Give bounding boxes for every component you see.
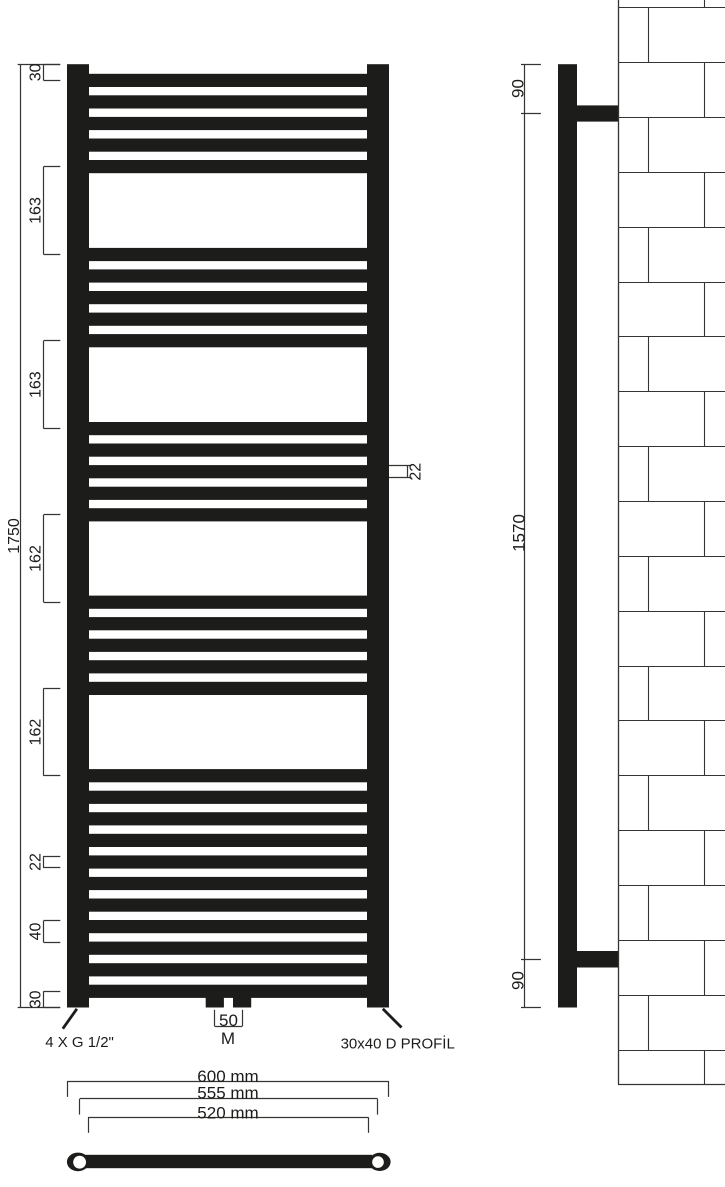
svg-text:163: 163 bbox=[28, 197, 45, 224]
svg-text:30: 30 bbox=[28, 63, 45, 81]
svg-text:162: 162 bbox=[28, 719, 45, 746]
svg-text:555 mm: 555 mm bbox=[197, 1084, 258, 1103]
svg-text:4 X G 1/2": 4 X G 1/2" bbox=[45, 1034, 114, 1051]
svg-text:50: 50 bbox=[219, 1011, 238, 1030]
svg-text:22: 22 bbox=[408, 463, 425, 481]
svg-text:90: 90 bbox=[509, 971, 528, 990]
svg-text:M: M bbox=[221, 1029, 235, 1048]
svg-text:90: 90 bbox=[509, 79, 528, 98]
svg-text:1570: 1570 bbox=[510, 514, 529, 552]
svg-text:22: 22 bbox=[28, 853, 45, 871]
svg-text:30: 30 bbox=[28, 990, 45, 1008]
svg-text:520 mm: 520 mm bbox=[197, 1104, 258, 1123]
svg-text:162: 162 bbox=[28, 545, 45, 572]
svg-text:30x40 D PROFİL: 30x40 D PROFİL bbox=[341, 1034, 455, 1052]
svg-text:1750: 1750 bbox=[6, 518, 23, 554]
svg-text:40: 40 bbox=[28, 923, 45, 941]
svg-text:163: 163 bbox=[28, 371, 45, 398]
